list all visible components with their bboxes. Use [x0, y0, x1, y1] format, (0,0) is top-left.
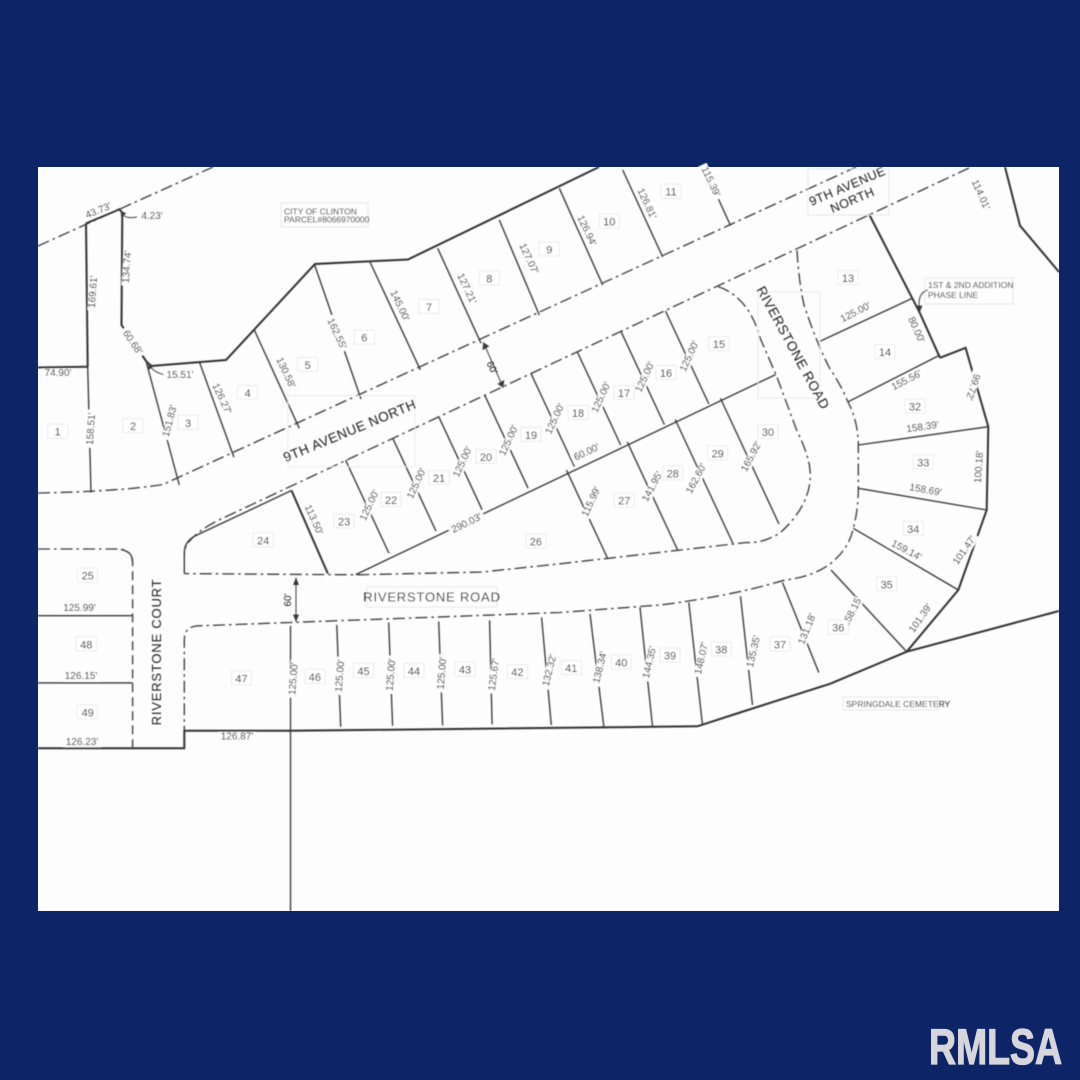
svg-text:38: 38	[715, 645, 727, 657]
svg-text:15.51': 15.51'	[167, 370, 194, 381]
svg-text:11: 11	[665, 187, 676, 199]
svg-text:2: 2	[130, 421, 136, 433]
svg-text:36: 36	[832, 623, 844, 635]
svg-text:45: 45	[357, 666, 369, 678]
svg-text:32: 32	[909, 402, 921, 414]
svg-text:46: 46	[309, 672, 321, 684]
svg-text:6: 6	[361, 333, 367, 345]
svg-text:49: 49	[82, 707, 94, 719]
svg-text:48: 48	[80, 639, 92, 651]
svg-text:1ST & 2ND ADDITION: 1ST & 2ND ADDITION	[928, 280, 1013, 290]
svg-text:29: 29	[712, 448, 724, 460]
svg-text:126.15': 126.15'	[65, 671, 98, 682]
svg-text:RMLSA: RMLSA	[929, 1019, 1062, 1075]
svg-text:18: 18	[572, 408, 584, 420]
svg-text:21: 21	[433, 473, 445, 485]
svg-text:44: 44	[408, 666, 420, 678]
svg-text:13: 13	[842, 273, 854, 285]
svg-text:8: 8	[486, 273, 492, 285]
svg-text:1: 1	[55, 427, 61, 439]
svg-text:7: 7	[426, 302, 432, 314]
svg-text:100.18': 100.18'	[973, 450, 986, 483]
svg-text:60': 60'	[283, 593, 294, 606]
svg-text:10: 10	[603, 217, 615, 229]
svg-text:24: 24	[257, 535, 269, 547]
svg-text:3: 3	[185, 418, 191, 430]
svg-text:27: 27	[618, 496, 630, 508]
svg-text:17: 17	[618, 388, 630, 400]
svg-text:39: 39	[664, 651, 676, 663]
svg-text:37: 37	[774, 640, 786, 652]
svg-text:30: 30	[762, 427, 774, 439]
svg-text:16: 16	[660, 368, 672, 380]
svg-text:4: 4	[245, 388, 251, 400]
svg-text:40: 40	[615, 658, 627, 670]
svg-text:43: 43	[459, 665, 471, 677]
svg-text:126.23': 126.23'	[66, 737, 99, 748]
svg-text:25: 25	[82, 571, 94, 583]
svg-text:169.61': 169.61'	[87, 275, 100, 308]
svg-text:126.87': 126.87'	[221, 732, 254, 743]
svg-text:34: 34	[907, 524, 919, 536]
svg-text:47: 47	[235, 673, 247, 685]
svg-text:19: 19	[525, 430, 537, 442]
svg-text:15: 15	[713, 339, 725, 351]
svg-text:RIVERSTONE COURT: RIVERSTONE COURT	[149, 579, 164, 726]
svg-text:23: 23	[338, 517, 350, 529]
svg-text:20: 20	[480, 452, 492, 464]
svg-text:PHASE LINE: PHASE LINE	[928, 290, 978, 300]
svg-text:14: 14	[879, 347, 891, 359]
svg-text:35: 35	[881, 579, 893, 591]
svg-text:26: 26	[530, 536, 542, 548]
svg-text:4.23': 4.23'	[141, 211, 162, 222]
svg-text:22: 22	[385, 495, 397, 507]
svg-text:42: 42	[511, 667, 523, 679]
svg-text:158.51': 158.51'	[85, 412, 98, 445]
svg-text:125.99': 125.99'	[63, 603, 96, 614]
svg-text:28: 28	[667, 468, 679, 480]
svg-text:SPRINGDALE CEMETERY: SPRINGDALE CEMETERY	[846, 699, 951, 709]
svg-text:PARCEL#8066970000: PARCEL#8066970000	[284, 215, 370, 225]
svg-text:134.74': 134.74'	[121, 250, 134, 283]
svg-text:41: 41	[565, 663, 577, 675]
svg-text:5: 5	[305, 360, 311, 372]
svg-text:33: 33	[917, 457, 929, 469]
svg-text:9: 9	[546, 244, 552, 256]
svg-text:RIVERSTONE ROAD: RIVERSTONE ROAD	[363, 590, 500, 605]
svg-text:74.90': 74.90'	[45, 368, 72, 379]
